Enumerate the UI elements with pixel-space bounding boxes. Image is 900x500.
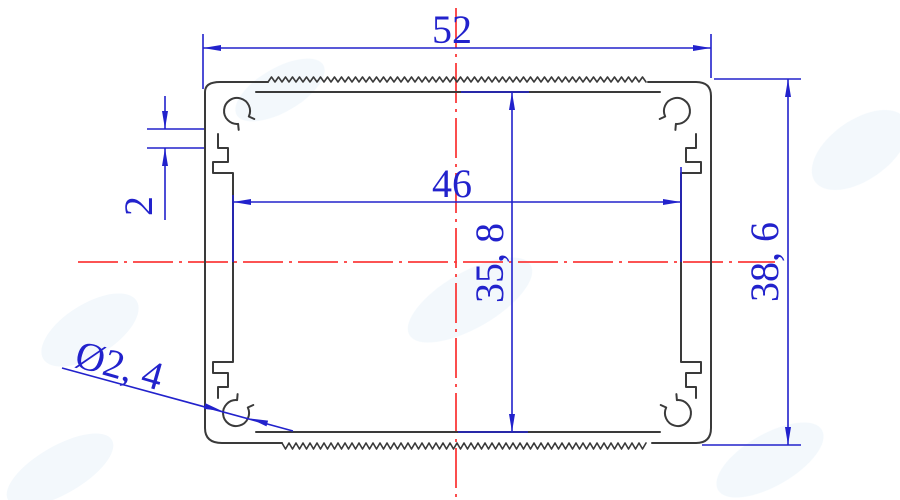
arrowhead: [509, 92, 515, 110]
screw-boss-top-right: [660, 98, 690, 130]
dim-text-hole-diameter: Ø2, 4: [71, 331, 169, 399]
profile-outline: [205, 77, 711, 449]
arrowhead: [785, 79, 791, 97]
profile-drawing: 52 46 35, 8 38, 6 2 Ø2, 4: [0, 0, 900, 500]
dim-text-outer-height: 38, 6: [742, 222, 787, 302]
cad-drawing-canvas: 52 46 35, 8 38, 6 2 Ø2, 4: [0, 0, 900, 500]
arrowhead: [509, 414, 515, 432]
dim-text-inner-height: 35, 8: [467, 223, 512, 303]
screw-boss-bottom-left: [223, 394, 253, 426]
screw-boss-bottom-right: [661, 394, 691, 426]
dim-text-inner-width: 46: [432, 161, 472, 206]
arrowhead: [693, 45, 711, 51]
arrowhead: [663, 199, 681, 205]
arrowhead: [162, 148, 168, 166]
left-wall-slots: [213, 134, 233, 398]
dim-text-slot-step: 2: [116, 196, 161, 216]
arrowhead: [162, 111, 168, 129]
dimension-layer: 52 46 35, 8 38, 6 2 Ø2, 4: [62, 7, 801, 445]
arrowhead: [203, 45, 221, 51]
right-wall-slots: [681, 134, 701, 398]
arrowhead: [204, 403, 222, 411]
dim-text-outer-width: 52: [432, 7, 472, 52]
top-knurl: [268, 77, 646, 82]
dimension-arrows-and-text: 52 46 35, 8 38, 6 2 Ø2, 4: [71, 7, 791, 445]
bottom-knurl: [282, 443, 646, 449]
arrowhead: [250, 419, 268, 427]
arrowhead: [233, 199, 251, 205]
